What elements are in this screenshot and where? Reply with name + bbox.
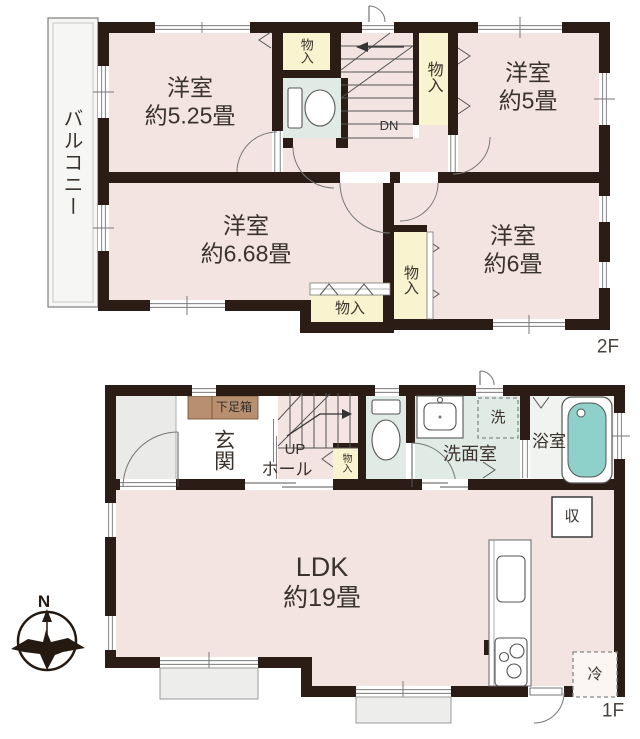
room-6-name: 洋室 — [484, 222, 543, 250]
ldk-size: 約19畳 — [283, 583, 361, 613]
ldk-label: LDK 約19畳 — [283, 551, 361, 613]
floor1-plan — [105, 371, 630, 723]
compass-rose — [11, 609, 85, 670]
floor2-plan — [48, 6, 615, 334]
room-525-label: 洋室 約5.25畳 — [145, 74, 236, 129]
toilet-2f-fixture — [288, 88, 335, 128]
room-6-size: 約6畳 — [484, 250, 543, 278]
terrace-step-right — [356, 697, 451, 723]
closet-bottom-label: 物入 — [335, 300, 365, 318]
closet-1f-label: 物入 — [339, 453, 351, 473]
hall-label: ホール — [262, 460, 313, 480]
closet-top-label: 物入 — [298, 38, 314, 64]
room-525-name: 洋室 — [145, 74, 236, 102]
stairs-down-label: DN — [380, 118, 399, 134]
ldk-name: LDK — [283, 551, 361, 583]
terrace-step-left — [160, 668, 258, 699]
kitchen-counter — [489, 540, 531, 686]
room-6-label: 洋室 約6畳 — [484, 222, 543, 277]
storage-label: 収 — [564, 508, 579, 526]
room-525-size: 約5.25畳 — [145, 102, 236, 130]
entrance-label: 玄関 — [210, 429, 235, 471]
floor-plan: バルコニー 洋室 約5.25畳 洋室 約5畳 洋室 約6.68畳 洋室 約6畳 … — [0, 0, 640, 739]
toilet-1f-fixture — [372, 400, 400, 460]
shoe-box-label: 下足箱 — [216, 400, 252, 414]
room-5-label: 洋室 約5畳 — [499, 59, 558, 114]
room-668-label: 洋室 約6.68畳 — [201, 212, 292, 267]
bathroom-label: 浴室 — [532, 432, 566, 452]
porch-floor — [116, 396, 176, 479]
washer-label: 洗 — [490, 409, 505, 427]
washroom-label: 洗面室 — [443, 444, 497, 466]
balcony-label: バルコニー — [59, 108, 83, 218]
floor1-label: 1F — [602, 701, 624, 724]
closet-right-label: 物入 — [423, 61, 442, 93]
floor2-label: 2F — [597, 337, 619, 360]
closet-mid-label: 物入 — [401, 265, 419, 295]
room-5-name: 洋室 — [499, 59, 558, 87]
bathtub — [562, 397, 612, 483]
room-668-size: 約6.68畳 — [201, 240, 292, 268]
room-5-size: 約5畳 — [499, 87, 558, 115]
ldk-floor — [116, 490, 614, 686]
room-668-name: 洋室 — [201, 212, 292, 240]
stairs-up-label: UP — [285, 441, 306, 459]
refrigerator-label: 冷 — [587, 666, 602, 684]
washbasin — [417, 396, 463, 438]
compass-north-label: N — [38, 592, 50, 612]
